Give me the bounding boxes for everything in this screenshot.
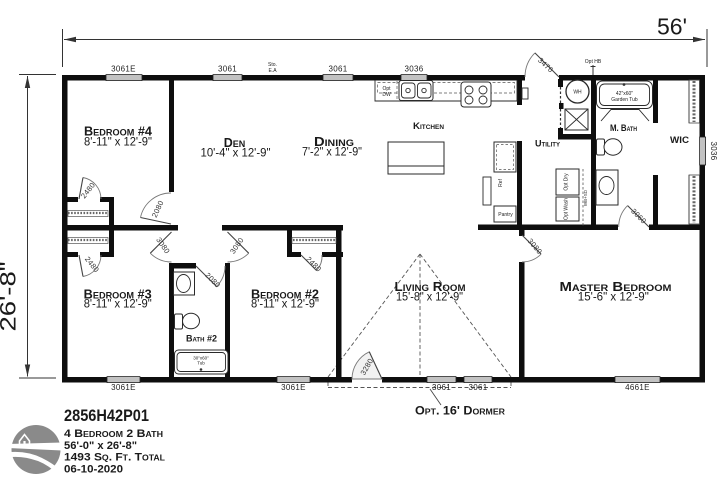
svg-text:Opt. 16' Dormer: Opt. 16' Dormer: [415, 406, 505, 418]
svg-text:7'-2" x 12'-9": 7'-2" x 12'-9": [302, 145, 362, 159]
svg-text:Ref: Ref: [498, 178, 504, 186]
svg-text:M. Bath: M. Bath: [610, 123, 637, 133]
svg-text:Opt HB: Opt HB: [585, 59, 602, 65]
svg-text:8'-11" x 12'-9": 8'-11" x 12'-9": [251, 296, 319, 310]
svg-text:26'-8": 26'-8": [0, 262, 21, 332]
svg-text:3061: 3061: [469, 383, 488, 392]
svg-text:3061E: 3061E: [111, 65, 136, 74]
svg-text:2856H42P01: 2856H42P01: [64, 407, 149, 425]
svg-text:Pantry: Pantry: [498, 212, 513, 218]
svg-text:Kitchen: Kitchen: [413, 121, 444, 131]
svg-text:4661E: 4661E: [625, 383, 650, 392]
svg-text:DW: DW: [382, 92, 391, 98]
svg-text:10'-4" x 12'-9": 10'-4" x 12'-9": [201, 146, 271, 160]
svg-text:3036: 3036: [405, 65, 424, 74]
svg-text:8'-11" x 12'-9": 8'-11" x 12'-9": [84, 135, 152, 149]
svg-text:4 Bedroom 2 Bath: 4 Bedroom 2 Bath: [64, 428, 163, 440]
svg-text:WB+SD: WB+SD: [583, 189, 588, 206]
svg-text:15'-6" x 12'-9": 15'-6" x 12'-9": [578, 290, 649, 304]
svg-text:56': 56': [657, 14, 687, 40]
svg-text:Tub: Tub: [197, 361, 205, 366]
svg-text:3061: 3061: [329, 65, 348, 74]
svg-text:06-10-2020: 06-10-2020: [64, 464, 123, 476]
svg-text:3036: 3036: [709, 142, 718, 161]
svg-text:3061E: 3061E: [111, 383, 136, 392]
svg-text:3061: 3061: [218, 65, 237, 74]
svg-text:Bath #2: Bath #2: [186, 334, 217, 344]
svg-text:56'-0" x 26'-8": 56'-0" x 26'-8": [64, 440, 137, 452]
svg-text:3061: 3061: [432, 383, 451, 392]
svg-text:Opt Dry: Opt Dry: [564, 173, 570, 191]
svg-text:Garden Tub: Garden Tub: [611, 97, 638, 103]
svg-text:WH: WH: [573, 90, 582, 96]
svg-text:Opt Wash: Opt Wash: [564, 198, 570, 220]
svg-text:1493 Sq. Ft. Total: 1493 Sq. Ft. Total: [64, 452, 165, 464]
svg-text:15'-8" x 12'-9": 15'-8" x 12'-9": [396, 290, 463, 304]
svg-text:WIC: WIC: [670, 135, 690, 145]
svg-text:Utility: Utility: [535, 139, 560, 149]
svg-text:8'-11" x 12'-9": 8'-11" x 12'-9": [84, 296, 152, 310]
svg-text:E.A: E.A: [268, 68, 277, 74]
svg-text:3061E: 3061E: [281, 383, 306, 392]
